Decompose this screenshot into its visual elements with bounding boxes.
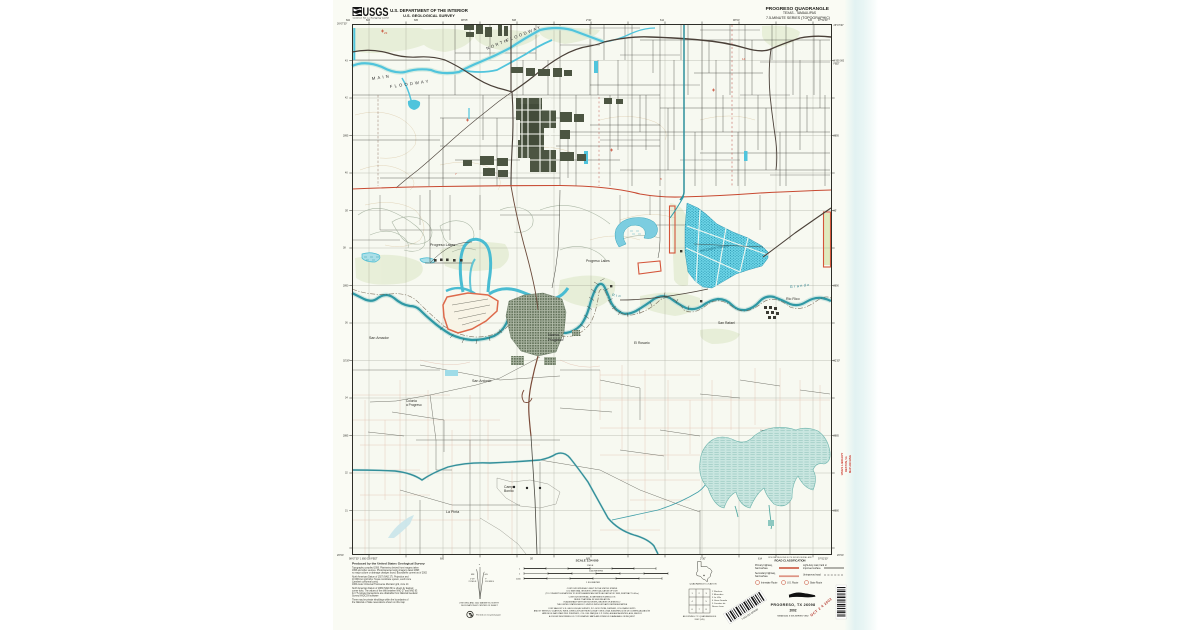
svg-text:1 MILE: 1 MILE: [587, 565, 594, 567]
svg-text:QUADRANGLE LOCATION: QUADRANGLE LOCATION: [690, 583, 717, 586]
svg-text:DECLINATION AT CENTER OF SHEET: DECLINATION AT CENTER OF SHEET: [461, 604, 499, 607]
svg-text:a Progreso: a Progreso: [406, 403, 422, 407]
svg-text:PROGRESO, TX 26098: PROGRESO, TX 26098: [771, 603, 816, 607]
svg-text:MN: MN: [471, 574, 475, 576]
svg-text:Progreso Lakes: Progreso Lakes: [430, 243, 455, 247]
svg-text:2890: 2890: [834, 285, 840, 288]
svg-text:97°52'30": 97°52'30": [818, 19, 828, 22]
svg-text:2880: 2880: [834, 510, 840, 513]
svg-text:El Rosario: El Rosario: [634, 341, 650, 345]
svg-text:23: 23: [384, 31, 388, 35]
svg-text:SCALE 1:24 000: SCALE 1:24 000: [576, 559, 599, 563]
svg-text:U.S. GEOLOGICAL SURVEY: U.S. GEOLOGICAL SURVEY: [403, 13, 455, 18]
svg-text:5 Cuevitas de: 5 Cuevitas de: [712, 602, 726, 605]
svg-text:1 850 000 FEET: 1 850 000 FEET: [360, 558, 378, 561]
svg-text:98°05': 98°05': [461, 19, 468, 22]
svg-text:614: 614: [758, 558, 763, 561]
svg-text:the National or State reservat: the National or State reservations shown…: [352, 601, 406, 604]
svg-text:2895: 2895: [343, 135, 349, 138]
svg-text:4 Llano Grande: 4 Llano Grande: [712, 599, 728, 602]
svg-text:Interstate Route: Interstate Route: [761, 582, 778, 585]
svg-text:2 Mercedes: 2 Mercedes: [712, 593, 724, 596]
svg-text:97°52'30": 97°52'30": [818, 558, 828, 561]
svg-text:608: 608: [512, 19, 517, 22]
svg-text:05': 05': [530, 558, 534, 561]
svg-text:603: 603: [366, 19, 371, 22]
svg-text:05': 05': [834, 210, 838, 213]
svg-text:26°07'30": 26°07'30": [337, 23, 347, 26]
svg-text:2002: 2002: [789, 609, 796, 613]
svg-text:124 MILS: 124 MILS: [485, 581, 495, 583]
svg-text:2885: 2885: [834, 435, 840, 438]
svg-text:Progreso Lakes: Progreso Lakes: [586, 259, 610, 263]
svg-text:Printed on recycled paper: Printed on recycled paper: [476, 614, 501, 617]
svg-text:FEET: FEET: [834, 63, 841, 66]
svg-text:1000 METERS: 1000 METERS: [589, 571, 603, 573]
svg-text:2002 (US): 2002 (US): [695, 619, 705, 621]
svg-text:San Amador: San Amador: [369, 336, 390, 340]
svg-text:RESULT NATURAL IN SIGN RELATIO: RESULT NATURAL IN SIGN RELATION: [574, 598, 610, 601]
svg-text:RESTON, VA: RESTON, VA: [844, 456, 848, 472]
svg-text:1 Weslaco: 1 Weslaco: [712, 591, 723, 593]
svg-text:San Rafael: San Rafael: [718, 321, 735, 325]
svg-text:AND BY SERVICIO CUARTOS, INEGI: AND BY SERVICIO CUARTOS, INEGI, DIRECCIÓ…: [534, 609, 651, 612]
svg-text:USGS LIBRARY: USGS LIBRARY: [840, 453, 844, 476]
svg-text:NIMA 8444 II SW-SERIES V882: NIMA 8444 II SW-SERIES V882: [777, 615, 809, 618]
svg-text:Primary highway,: Primary highway,: [755, 564, 773, 567]
svg-text:hard surface: hard surface: [755, 575, 768, 578]
svg-text:2°30': 2°30': [586, 19, 592, 22]
svg-text:2890: 2890: [343, 285, 349, 288]
svg-text:615: 615: [808, 19, 813, 22]
svg-text:FOR SALE BY U.S. GEOLOGICAL SU: FOR SALE BY U.S. GEOLOGICAL SURVEY, P.O.…: [549, 607, 637, 610]
svg-text:Nuevo: Nuevo: [548, 333, 559, 337]
svg-text:HÉROE DE NACOZARI 2301 PUERTA: HÉROE DE NACOZARI 2301 PUERTA 11, COL. D…: [542, 612, 642, 615]
svg-text:CONTOUR INTERVAL, SOMETIMES IN: CONTOUR INTERVAL, SOMETIMES IN MEXICO IS: [569, 595, 616, 598]
svg-text:2885: 2885: [343, 435, 349, 438]
svg-text:U.S. NATIONAL GEODETIC VERTICA: U.S. NATIONAL GEODETIC VERTICAL DATUM OF…: [566, 590, 618, 593]
svg-text:Produced by the United States: Produced by the United States Geological…: [352, 562, 425, 566]
svg-text:05': 05': [345, 210, 349, 213]
svg-text:ADJOINING 7.5' QUADRANGLES: ADJOINING 7.5' QUADRANGLES: [683, 615, 717, 618]
svg-text:U.S. Route: U.S. Route: [787, 582, 799, 585]
svg-text:21 MILS: 21 MILS: [469, 581, 477, 583]
svg-text:605: 605: [414, 19, 419, 22]
svg-text:no major culture or drainage c: no major culture or drainage changes fou…: [352, 572, 428, 575]
svg-text:TEXAS - TAMAULIPAS: TEXAS - TAMAULIPAS: [783, 11, 816, 15]
svg-text:Bonito: Bonito: [504, 489, 514, 493]
svg-text:Light-duty road, hard or: Light-duty road, hard or: [803, 564, 827, 567]
svg-text:La Pinta: La Pinta: [446, 510, 459, 514]
svg-text:GN: GN: [485, 574, 489, 576]
svg-text:THE UNITED STATES MEXICO UNITE: THE UNITED STATES MEXICO UNITED WITH EST…: [557, 603, 628, 606]
svg-text:Unimproved road: Unimproved road: [803, 574, 821, 577]
svg-text:14: 14: [742, 57, 746, 61]
svg-text:02'30": 02'30": [834, 360, 841, 363]
svg-text:science for a changing world: science for a changing world: [353, 17, 390, 20]
svg-text:98°07'30": 98°07'30": [349, 558, 359, 561]
svg-text:Survey NADCON software: Survey NADCON software: [352, 595, 379, 598]
svg-text:State Route: State Route: [810, 582, 823, 585]
svg-text:(TO CONVERT ELEVATIONS TO NORT: (TO CONVERT ELEVATIONS TO NORTH AMERICAN…: [545, 592, 638, 595]
svg-text:improved surface: improved surface: [803, 567, 821, 570]
svg-text:26°07'30": 26°07'30": [834, 24, 844, 27]
svg-text:hard surface: hard surface: [755, 567, 768, 570]
svg-text:2895: 2895: [834, 135, 840, 138]
svg-text:A FOLDER DESCRIBING U.S. TOPOG: A FOLDER DESCRIBING U.S. TOPOGRAPHIC MAP…: [549, 615, 636, 618]
svg-text:02'30": 02'30": [343, 360, 350, 363]
svg-text:ROAD CLASSIFICATION: ROAD CLASSIFICATION: [774, 559, 805, 563]
svg-text:1000-meter Universal Transvers: 1000-meter Universal Transverse Mercator…: [352, 583, 409, 586]
svg-text:San Antonio: San Antonio: [472, 379, 491, 383]
svg-text:606: 606: [440, 558, 445, 561]
svg-text:1 KILOMETER: 1 KILOMETER: [586, 582, 600, 584]
svg-text:2°30": 2°30": [700, 558, 706, 561]
svg-text:CONTOUR INTERVAL 5 FEET IN THE: CONTOUR INTERVAL 5 FEET IN THE UNITED ST…: [567, 587, 618, 590]
svg-text:98°00': 98°00': [733, 19, 740, 22]
svg-text:Progreso: Progreso: [548, 338, 563, 342]
svg-text:IN ASSISTANT WITH UNIT AT WORK: IN ASSISTANT WITH UNIT AT WORK, BELIEVE …: [564, 601, 621, 604]
svg-text:Rio Rico: Rio Rico: [786, 297, 800, 301]
svg-text:Secondary highway,: Secondary highway,: [755, 572, 776, 575]
svg-text:612: 612: [660, 19, 665, 22]
svg-text:26°00': 26°00': [337, 554, 344, 557]
svg-text:26°00': 26°00': [837, 554, 844, 557]
svg-text:Nuevo Leon: Nuevo Leon: [712, 606, 725, 608]
svg-text:3 La Villa: 3 La Villa: [712, 597, 722, 599]
svg-text:MAP ARCHIVE: MAP ARCHIVE: [848, 455, 852, 473]
